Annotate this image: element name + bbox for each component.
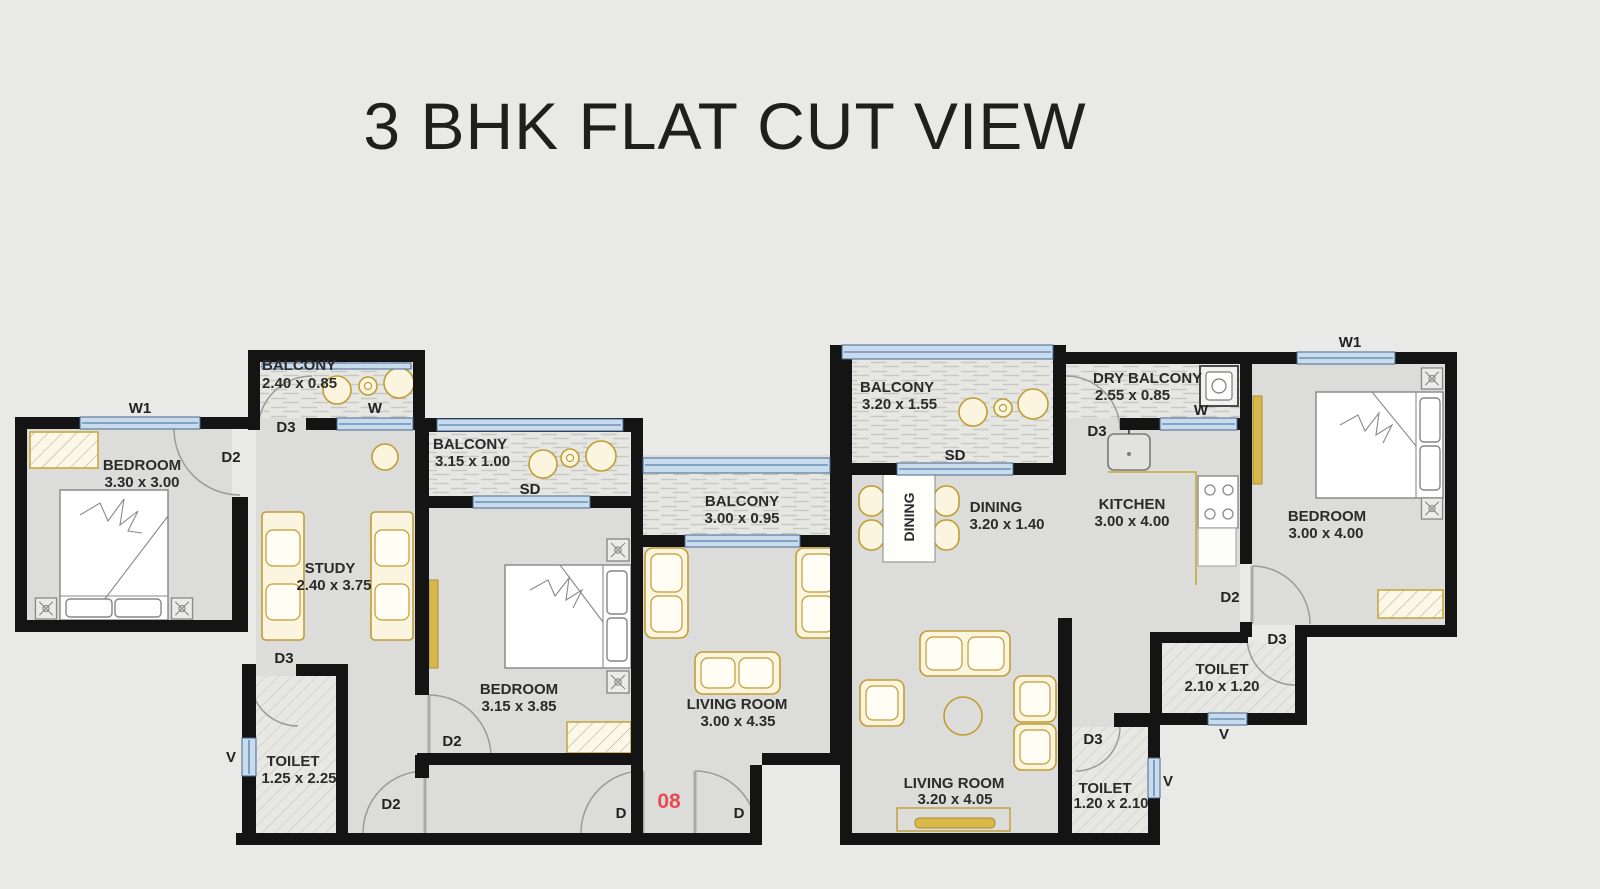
washing-machine-icon	[1200, 366, 1238, 406]
tag-w-dry-balcony: W	[1194, 402, 1209, 419]
room-dims-dining: 3.20 x 1.40	[969, 516, 1044, 533]
room-dims-toilet-left: 1.25 x 2.25	[261, 770, 336, 787]
room-dims-toilet-lower: 1.20 x 2.10	[1073, 795, 1148, 812]
tag-d2-bedroom-right: D2	[1220, 589, 1239, 606]
room-label-study: STUDY	[305, 560, 356, 577]
room-label-living-left: LIVING ROOM	[687, 696, 788, 713]
tag-d2-bedroom-mid: D2	[442, 733, 461, 750]
room-dims-balcony-dining: 3.20 x 1.55	[862, 396, 937, 413]
tag-sd-dining: SD	[945, 447, 966, 464]
window-w1-right	[1297, 352, 1395, 364]
room-dims-dry-balcony: 2.55 x 0.85	[1095, 387, 1170, 404]
room-dims-living-right: 3.20 x 4.05	[917, 791, 992, 808]
tag-v-toilet-upper: V	[1219, 726, 1229, 743]
room-dims-toilet-upper: 2.10 x 1.20	[1184, 678, 1259, 695]
window-balcony-mid-top	[437, 419, 623, 431]
tag-v-toilet-left: V	[226, 749, 236, 766]
railing-balcony-dining	[842, 345, 1053, 359]
bed-icon	[505, 565, 631, 668]
tag-d-entry-right: D	[734, 805, 745, 822]
room-dims-bedroom-left: 3.30 x 3.00	[104, 474, 179, 491]
room-dims-study: 2.40 x 3.75	[296, 577, 371, 594]
nightstand-icon	[35, 598, 56, 619]
room-dims-balcony-living: 3.00 x 0.95	[704, 510, 779, 527]
window-v-toilet-upper	[1208, 713, 1247, 725]
room-dims-balcony-middle: 3.15 x 1.00	[435, 453, 510, 470]
room-label-bedroom-middle: BEDROOM	[480, 681, 558, 698]
tag-w-study: W	[368, 400, 383, 417]
wardrobe-strip-icon	[429, 580, 438, 668]
window-w-study	[337, 418, 413, 430]
room-dims-bedroom-right: 3.00 x 4.00	[1288, 525, 1363, 542]
room-label-balcony-living: BALCONY	[705, 493, 779, 510]
tag-d-entry-left: D	[616, 805, 627, 822]
tag-d2-corridor: D2	[381, 796, 400, 813]
nightstand-icon	[607, 539, 629, 561]
wardrobe-strip-icon	[1253, 396, 1262, 484]
room-dims-living-left: 3.00 x 4.35	[700, 713, 775, 730]
floor-plan-page: 3 BHK FLAT CUT VIEW	[0, 0, 1600, 889]
unit-number: 08	[657, 790, 681, 813]
floor-plan-drawing: BEDROOM 3.30 x 3.00 STUDY 2.40 x 3.75 BA…	[0, 0, 1600, 889]
railing-balcony-living	[643, 458, 830, 473]
nightstand-icon	[607, 671, 629, 693]
tag-w1-right: W1	[1339, 334, 1362, 351]
room-dims-balcony-study: 2.40 x 0.85	[262, 375, 337, 392]
tag-d3-toilet-upper: D3	[1267, 631, 1286, 648]
room-label-dry-balcony: DRY BALCONY	[1093, 370, 1202, 387]
window-balcony-living-bottom	[685, 535, 800, 547]
room-label-toilet-left: TOILET	[266, 753, 319, 770]
bed-icon	[1316, 392, 1443, 498]
tag-v-toilet-lower: V	[1163, 773, 1173, 790]
room-dims-bedroom-middle: 3.15 x 3.85	[481, 698, 556, 715]
window-sd-dining	[897, 463, 1013, 475]
room-label-bedroom-right: BEDROOM	[1288, 508, 1366, 525]
tag-d3-balcony-study: D3	[276, 419, 295, 436]
tag-d3-toilet-left: D3	[274, 650, 293, 667]
tag-sd-bedroom-mid: SD	[520, 481, 541, 498]
nightstand-icon	[1421, 498, 1442, 519]
room-label-balcony-study: BALCONY	[262, 357, 336, 374]
room-label-toilet-upper: TOILET	[1195, 661, 1248, 678]
window-v-toilet-left	[242, 738, 256, 776]
counter-icon	[1198, 528, 1236, 566]
window-w1-left	[80, 417, 200, 429]
dining-table-label: DINING	[901, 492, 917, 541]
tag-d3-dry-balcony: D3	[1087, 423, 1106, 440]
nightstand-icon	[1421, 368, 1442, 389]
stove-icon	[1198, 476, 1238, 528]
room-label-bedroom-left: BEDROOM	[103, 457, 181, 474]
bed-icon	[60, 490, 168, 620]
room-label-balcony-dining: BALCONY	[860, 379, 934, 396]
window-v-toilet-lower	[1148, 758, 1160, 798]
room-dims-kitchen: 3.00 x 4.00	[1094, 513, 1169, 530]
room-label-kitchen: KITCHEN	[1099, 496, 1166, 513]
room-label-living-right: LIVING ROOM	[904, 775, 1005, 792]
room-label-dining: DINING	[970, 499, 1023, 516]
tag-d2-bedroom-left: D2	[221, 449, 240, 466]
wardrobe-icon	[30, 432, 98, 468]
room-label-balcony-middle: BALCONY	[433, 436, 507, 453]
tag-w1-left: W1	[129, 400, 152, 417]
wardrobe-icon	[567, 722, 631, 753]
nightstand-icon	[171, 598, 192, 619]
tag-d3-toilet-lower: D3	[1083, 731, 1102, 748]
window-w-dry-balcony	[1160, 418, 1237, 430]
wardrobe-icon	[1378, 590, 1443, 618]
